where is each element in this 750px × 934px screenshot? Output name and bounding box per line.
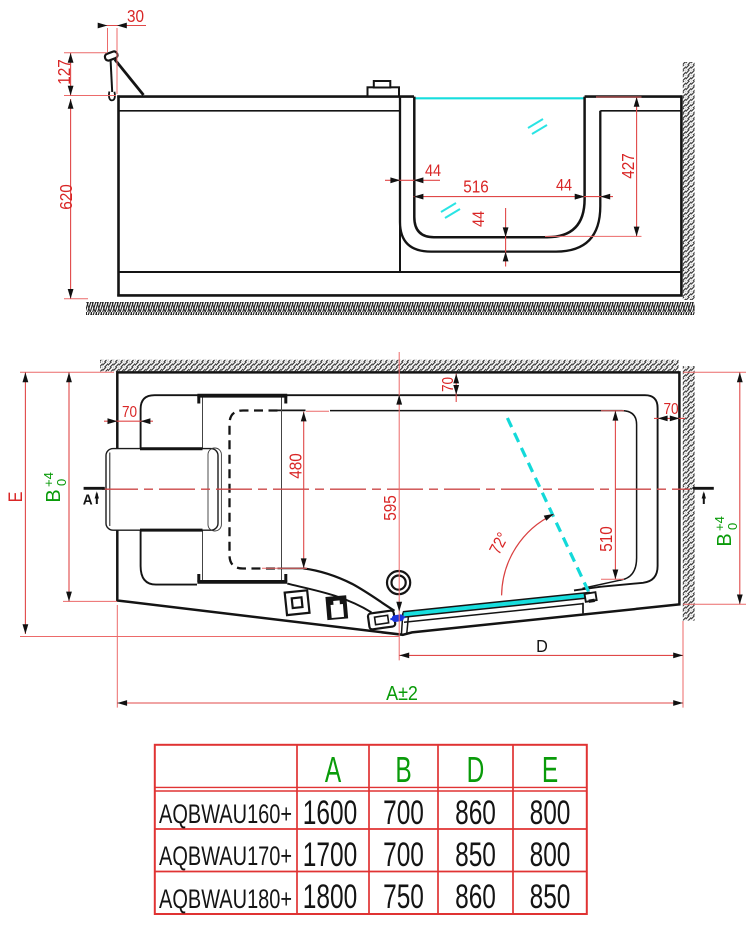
svg-text:800: 800 [530,794,571,832]
svg-text:72°: 72° [487,530,513,558]
svg-text:860: 860 [455,878,496,916]
svg-text:1800: 1800 [303,878,357,916]
svg-text:A: A [325,749,342,790]
svg-text:D: D [467,749,485,790]
svg-text:E: E [542,749,558,790]
svg-text:1700: 1700 [303,836,357,874]
svg-text:44: 44 [470,211,488,227]
svg-text:44: 44 [556,176,572,194]
svg-text:AQBWAU170+: AQBWAU170+ [159,841,292,872]
svg-text:700: 700 [383,836,424,874]
svg-text:B: B [714,533,736,546]
svg-text:1600: 1600 [303,794,357,832]
svg-text:D: D [536,636,548,656]
svg-text:E: E [5,492,27,503]
svg-text:B: B [43,489,65,502]
svg-text:AQBWAU180+: AQBWAU180+ [159,884,292,915]
svg-text:AQBWAU160+: AQBWAU160+ [159,799,292,830]
svg-text:A±2: A±2 [386,683,418,705]
svg-text:850: 850 [530,878,571,916]
svg-text:700: 700 [383,794,424,832]
svg-text:70: 70 [440,377,457,392]
svg-text:480: 480 [285,453,305,479]
svg-text:0: 0 [54,479,69,486]
svg-text:70: 70 [122,404,137,421]
svg-text:A: A [83,492,94,509]
svg-text:30: 30 [127,6,144,26]
svg-text:0: 0 [725,523,740,530]
svg-text:44: 44 [425,162,441,180]
svg-text:860: 860 [455,794,496,832]
svg-text:516: 516 [463,176,489,196]
svg-text:595: 595 [380,495,400,521]
svg-text:B: B [395,749,411,790]
svg-text:620: 620 [56,184,76,210]
svg-text:750: 750 [383,878,424,916]
svg-text:800: 800 [530,836,571,874]
svg-text:510: 510 [596,526,616,552]
svg-text:70: 70 [663,401,678,418]
svg-text:427: 427 [618,153,638,179]
svg-text:850: 850 [455,836,496,874]
svg-text:127: 127 [54,59,74,85]
